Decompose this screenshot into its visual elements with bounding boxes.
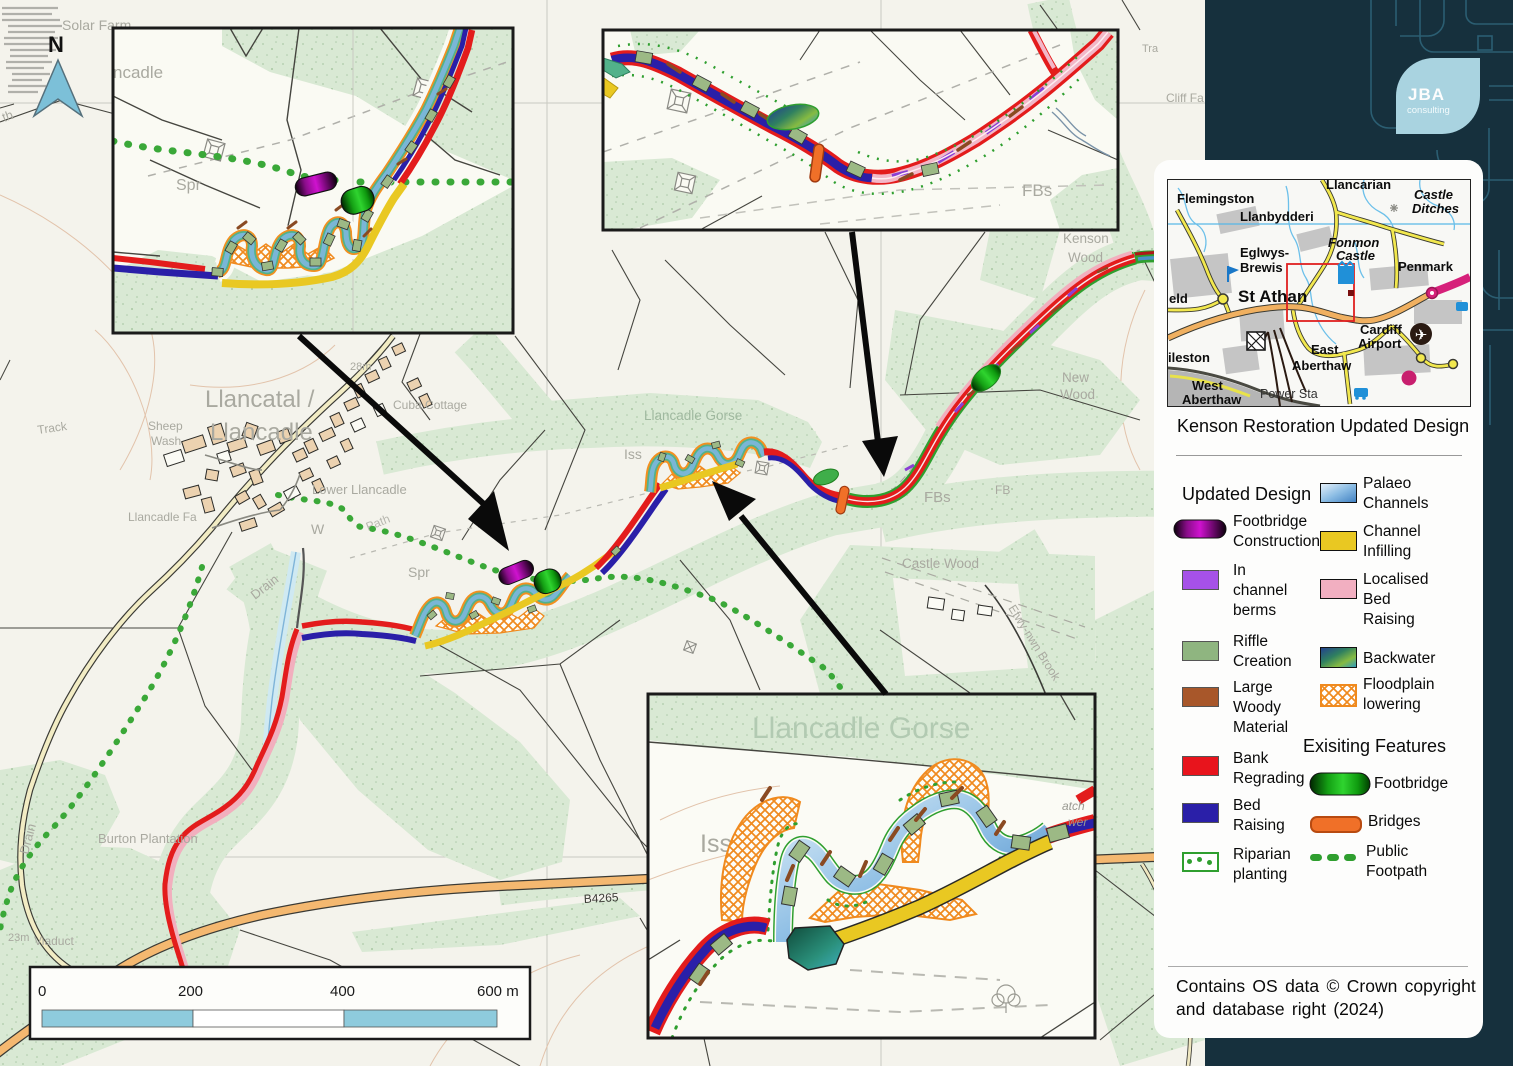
svg-text:Llancadle Gorse: Llancadle Gorse xyxy=(752,712,970,745)
svg-text:Brewis: Brewis xyxy=(1240,260,1283,275)
svg-text:Aberthaw: Aberthaw xyxy=(1182,392,1242,406)
svg-text:Llancadle Gorse: Llancadle Gorse xyxy=(644,408,742,423)
svg-text:Castle: Castle xyxy=(1336,248,1375,263)
svg-text:ncadle: ncadle xyxy=(113,63,163,82)
svg-text:Aberthaw: Aberthaw xyxy=(1292,358,1352,373)
svg-text:Spr: Spr xyxy=(176,177,202,194)
svg-text:FB: FB xyxy=(995,483,1010,497)
svg-text:Llancadle: Llancadle xyxy=(210,419,313,446)
svg-text:N: N xyxy=(48,32,64,57)
svg-text:Penmark: Penmark xyxy=(1398,259,1454,274)
svg-text:Castle: Castle xyxy=(1414,187,1453,202)
svg-text:atch: atch xyxy=(1062,799,1085,813)
svg-text:B4265: B4265 xyxy=(583,890,619,906)
svg-text:Tra: Tra xyxy=(1142,43,1159,55)
svg-text:Llancatal /: Llancatal / xyxy=(205,386,315,413)
svg-text:Power Sta: Power Sta xyxy=(1260,387,1318,401)
svg-text:Flemingston: Flemingston xyxy=(1177,191,1254,206)
svg-text:wer: wer xyxy=(1068,815,1088,829)
svg-text:JBA: JBA xyxy=(1408,85,1445,104)
svg-text:consulting: consulting xyxy=(1407,105,1450,116)
svg-text:Cliff Fa: Cliff Fa xyxy=(1166,91,1204,105)
svg-text:FBs: FBs xyxy=(1022,181,1052,200)
svg-text:Sheep: Sheep xyxy=(148,419,183,433)
svg-text:Wash: Wash xyxy=(151,434,181,448)
svg-text:Viaduct: Viaduct xyxy=(34,934,74,948)
svg-text:St Athan: St Athan xyxy=(1238,287,1307,306)
svg-text:Wood: Wood xyxy=(1060,387,1095,402)
svg-text:Spr: Spr xyxy=(408,564,430,580)
svg-text:Ditches: Ditches xyxy=(1412,201,1459,216)
svg-text:West: West xyxy=(1192,378,1223,393)
svg-text:Eglwys-: Eglwys- xyxy=(1240,245,1289,260)
svg-text:Castle Wood: Castle Wood xyxy=(902,556,979,571)
svg-text:✈: ✈ xyxy=(1415,327,1428,344)
svg-text:Airport: Airport xyxy=(1358,336,1402,351)
svg-text:Llancadle Fa: Llancadle Fa xyxy=(128,510,197,524)
svg-text:W: W xyxy=(311,521,325,537)
svg-text:Burton Plantation: Burton Plantation xyxy=(98,831,198,846)
svg-text:400: 400 xyxy=(330,983,355,1000)
svg-text:Llancarian: Llancarian xyxy=(1326,180,1391,192)
svg-text:Cardiff: Cardiff xyxy=(1360,322,1403,337)
svg-text:Llanbydderi: Llanbydderi xyxy=(1240,209,1314,224)
svg-text:0: 0 xyxy=(38,983,46,1000)
svg-text:FBs: FBs xyxy=(924,489,951,506)
svg-text:200: 200 xyxy=(178,983,203,1000)
svg-text:eld: eld xyxy=(1169,291,1188,306)
svg-text:Cuba Cottage: Cuba Cottage xyxy=(393,398,467,412)
svg-text:Kenson: Kenson xyxy=(1063,231,1109,246)
svg-text:ileston: ileston xyxy=(1168,350,1210,365)
svg-text:Wood: Wood xyxy=(1068,250,1103,265)
svg-text:28m: 28m xyxy=(350,361,371,373)
svg-text:New: New xyxy=(1062,370,1089,385)
svg-text:23m: 23m xyxy=(8,932,29,944)
svg-text:600 m: 600 m xyxy=(477,983,519,1000)
svg-text:Lower Llancadle: Lower Llancadle xyxy=(312,482,407,497)
svg-text:East: East xyxy=(1311,342,1339,357)
